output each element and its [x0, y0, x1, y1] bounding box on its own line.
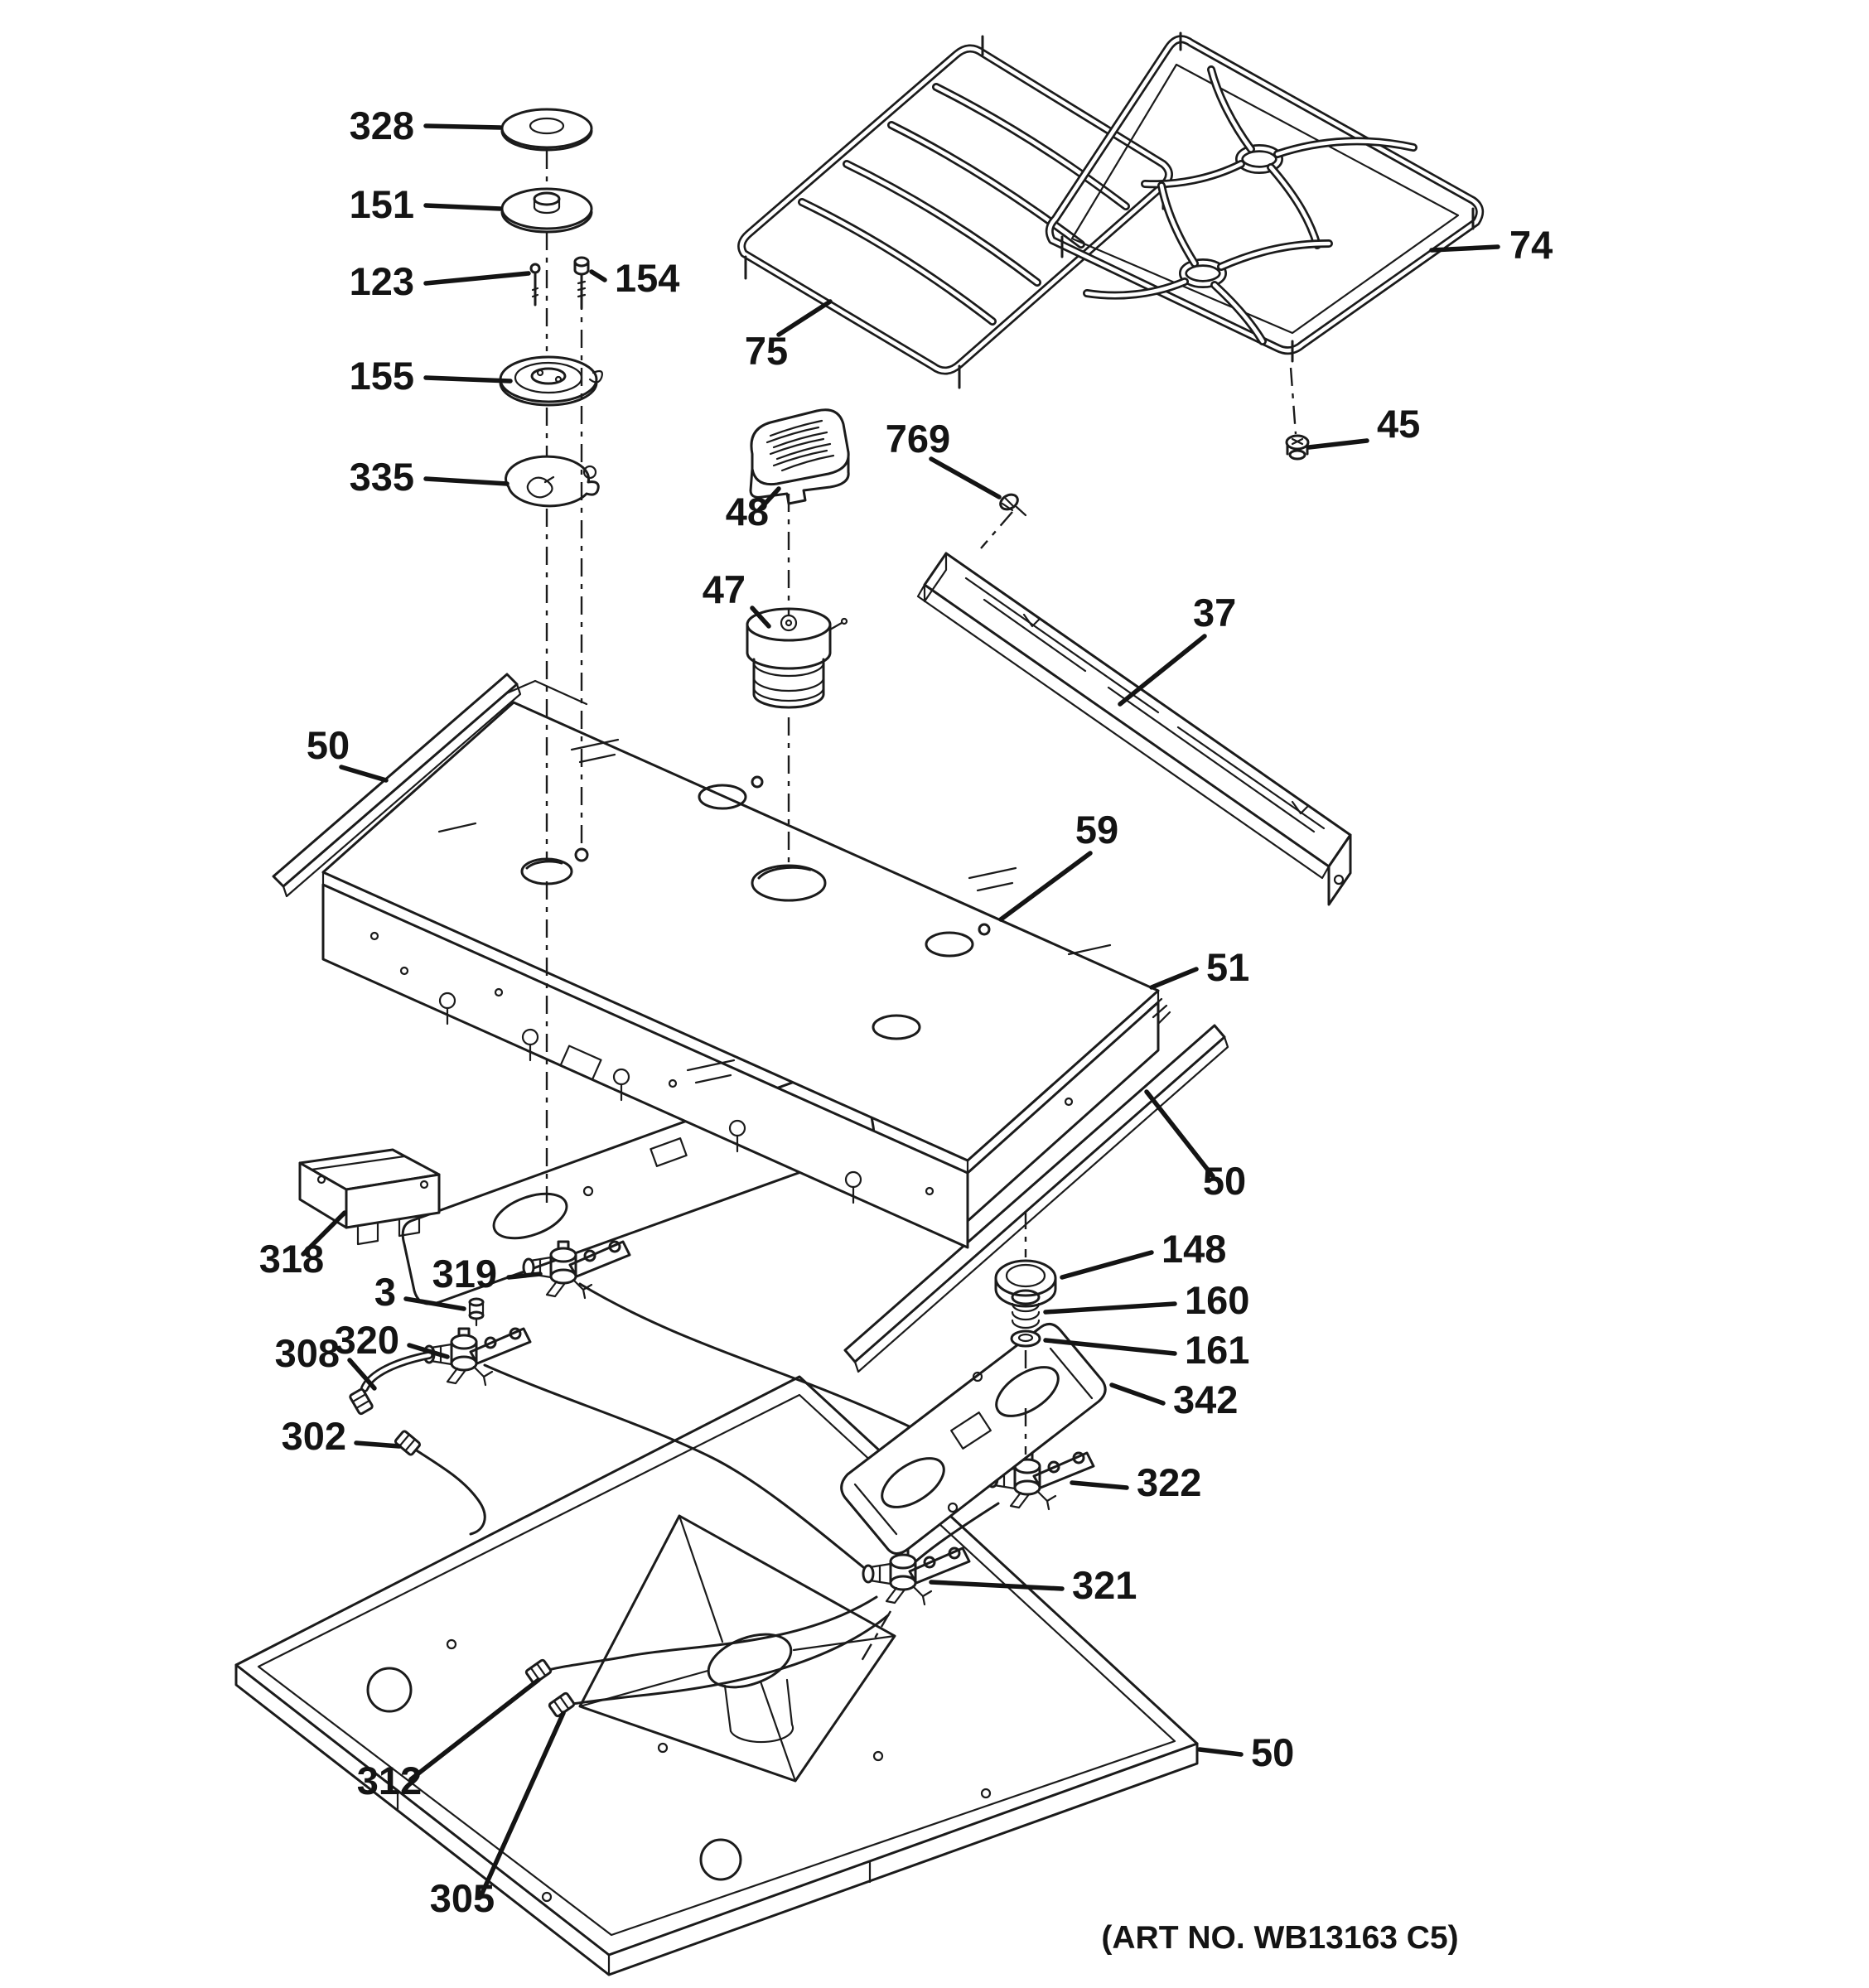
ring-328-shape	[502, 109, 592, 147]
callout-label-342-20: 342	[1173, 1378, 1238, 1421]
grate-74-shape	[1271, 167, 1317, 245]
callout-label-320-26: 320	[335, 1318, 399, 1362]
callout-leader-50-31	[1200, 1749, 1241, 1754]
callout-label-308-27: 308	[275, 1331, 340, 1375]
orifice-3-shape	[470, 1299, 483, 1305]
grate-75-shape	[936, 87, 1126, 206]
callout-label-37-12: 37	[1193, 591, 1236, 635]
callout-leader-155-4	[426, 378, 510, 381]
callout-label-302-28: 302	[282, 1414, 346, 1458]
igniter-button-48-shape	[751, 410, 848, 485]
callout-label-161-19: 161	[1185, 1328, 1249, 1372]
callout-label-50-13: 50	[307, 723, 350, 767]
gas-tube-308-shape	[350, 1388, 374, 1415]
shield-plate-335-shape	[506, 456, 599, 506]
sealed-burner-47	[747, 609, 847, 707]
orifice-3-shape	[470, 1312, 483, 1319]
grate-75-shape	[746, 36, 1163, 388]
callout-label-45-8: 45	[1377, 402, 1420, 446]
gas-tube-308	[350, 1355, 429, 1415]
diagram-page: 3281511231541553357574454876947375059515…	[0, 0, 1869, 1988]
callout-leader-50-13	[341, 767, 386, 780]
callout-leader-45-8	[1309, 441, 1367, 447]
bolt-154-shape	[575, 258, 588, 266]
wire-harness-302-shape	[413, 1448, 485, 1534]
wire-harness-302	[394, 1431, 485, 1534]
callout-leader-769-10	[931, 459, 999, 497]
callout-label-769-10: 769	[886, 417, 950, 461]
callout-label-48-9: 48	[726, 490, 769, 533]
burner-cap-151-shape	[534, 193, 559, 205]
sealed-burner-47-shape	[747, 653, 830, 668]
sealed-burner-47-shape	[830, 623, 842, 630]
callout-leader-328-0	[426, 126, 500, 128]
seal-ring-161	[1012, 1331, 1040, 1346]
callout-label-51-15: 51	[1206, 945, 1249, 989]
assembly-centerlines-shape	[1291, 368, 1296, 434]
grate-foot-45	[1287, 436, 1308, 459]
callout-label-75-6: 75	[745, 329, 788, 373]
callout-label-74-7: 74	[1509, 223, 1553, 267]
callout-label-50-31: 50	[1251, 1730, 1294, 1774]
callout-label-47-11: 47	[703, 567, 746, 611]
callout-label-319-24: 319	[432, 1252, 497, 1296]
grate-74-shape	[1211, 70, 1251, 149]
callout-leader-37-12	[1120, 636, 1205, 704]
exploded-diagram: 3281511231541553357574454876947375059515…	[0, 0, 1869, 1988]
sealed-burner-47-shape	[842, 619, 847, 624]
callout-label-123-2: 123	[350, 259, 414, 303]
screw-123	[531, 264, 539, 305]
burner-cap-stack	[500, 109, 602, 506]
callout-leader-151-1	[426, 205, 500, 209]
callout-label-321-22: 321	[1072, 1563, 1137, 1607]
callout-label-322-21: 322	[1137, 1460, 1201, 1504]
callout-leader-123-2	[426, 273, 529, 283]
grate-75	[741, 36, 1169, 388]
burner-head-155	[500, 357, 602, 405]
callout-label-148-17: 148	[1161, 1227, 1226, 1271]
callout-leader-154-3	[592, 272, 605, 280]
callout-label-50-16: 50	[1203, 1159, 1246, 1203]
shield-plate-335	[506, 456, 599, 506]
art-number: (ART NO. WB13163 C5)	[1101, 1920, 1458, 1956]
callout-leader-302-28	[356, 1443, 399, 1446]
callout-label-335-5: 335	[350, 455, 414, 499]
callout-leader-342-20	[1112, 1385, 1163, 1403]
grate-foot-45-shape	[1290, 451, 1305, 459]
callout-label-151-1: 151	[350, 182, 414, 226]
burner-cap-151	[502, 189, 592, 232]
callout-leader-160-18	[1046, 1304, 1175, 1312]
burner-holes-shape	[752, 777, 762, 787]
callout-label-155-4: 155	[350, 354, 414, 398]
seal-ring-161-shape	[1012, 1331, 1040, 1346]
callout-leader-335-5	[426, 479, 507, 484]
callout-label-312-29: 312	[357, 1759, 422, 1802]
callout-label-318-23: 318	[259, 1237, 324, 1281]
callout-label-328-0: 328	[350, 104, 414, 147]
ring-328	[502, 109, 592, 150]
assembly-centerlines-shape	[981, 512, 1012, 548]
back-rail-37-shape	[918, 585, 1329, 878]
callout-label-160-18: 160	[1185, 1278, 1249, 1322]
callout-label-3-25: 3	[374, 1270, 396, 1314]
callout-leader-148-17	[1062, 1252, 1152, 1277]
callout-leader-322-21	[1072, 1483, 1127, 1488]
grate-74-shape	[1221, 244, 1329, 267]
orifice-3	[470, 1299, 483, 1325]
callout-label-59-14: 59	[1075, 808, 1118, 852]
callout-label-305-30: 305	[430, 1876, 495, 1920]
callout-leader-51-15	[1152, 969, 1196, 987]
back-rail-37	[918, 553, 1350, 905]
callout-leader-59-14	[1001, 853, 1090, 919]
grate-75-shape	[847, 164, 1037, 282]
seal-ring-148	[996, 1261, 1055, 1306]
callout-label-154-3: 154	[615, 256, 679, 300]
back-rail-37-shape	[925, 553, 1350, 866]
